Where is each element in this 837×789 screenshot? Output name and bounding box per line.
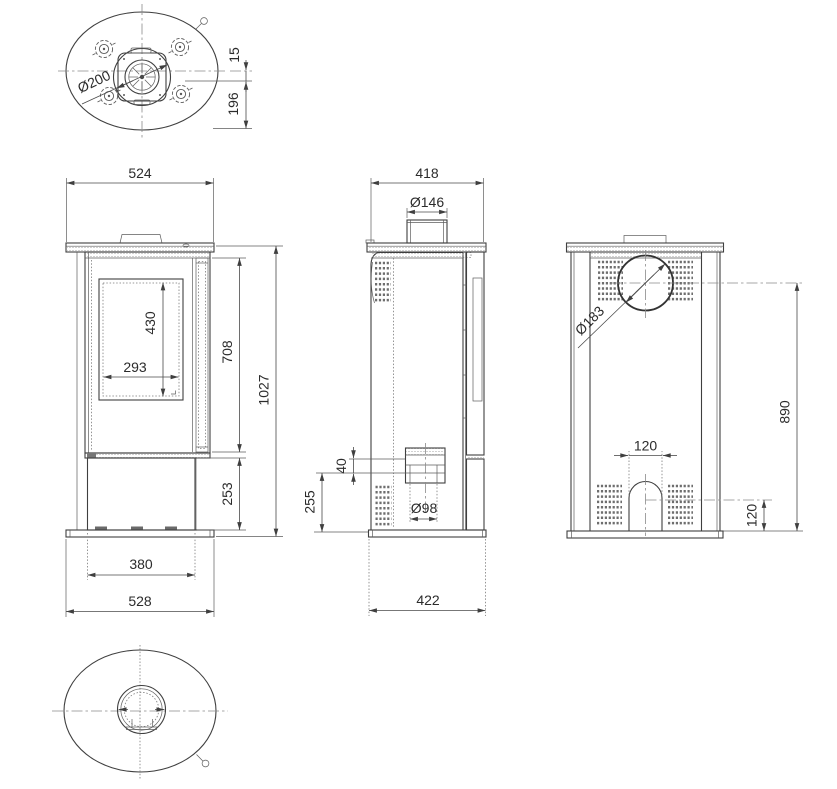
dim-label-air-inlet-diameter: Ø98: [411, 500, 438, 516]
dim-label-base-section-height: 253: [219, 482, 235, 506]
dim-label-base-inner-width: 380: [129, 556, 153, 572]
dim-label-flue-center-height: 890: [777, 400, 793, 424]
dim-label-upper-body-height: 708: [219, 340, 235, 364]
dim-label-total-height: 1027: [256, 374, 272, 405]
dim-label-arch-width: 120: [634, 438, 658, 454]
dim-label-arch-center-height: 120: [744, 504, 760, 528]
dim-label-base-depth: 422: [416, 592, 440, 608]
dim-label-side-depth: 418: [415, 165, 439, 181]
stove-dimension-drawing: Ø200 15 196: [0, 0, 837, 789]
drawing-background: [0, 0, 837, 789]
technical-drawing-page: Ø200 15 196: [0, 0, 837, 789]
dim-label-base-width: 528: [128, 593, 152, 609]
dim-label-air-inlet-offset: 40: [333, 458, 349, 474]
dim-label-glass-width: 293: [123, 359, 147, 375]
dim-label-front-top-width: 524: [128, 165, 152, 181]
dim-label-flue-collar-diameter: Ø146: [410, 194, 444, 210]
dim-label-flue-offset: 15: [226, 47, 242, 63]
dim-label-air-inlet-center-height: 255: [302, 490, 318, 514]
dim-label-glass-height: 430: [142, 311, 158, 335]
dim-label-flue-to-back: 196: [225, 92, 241, 116]
